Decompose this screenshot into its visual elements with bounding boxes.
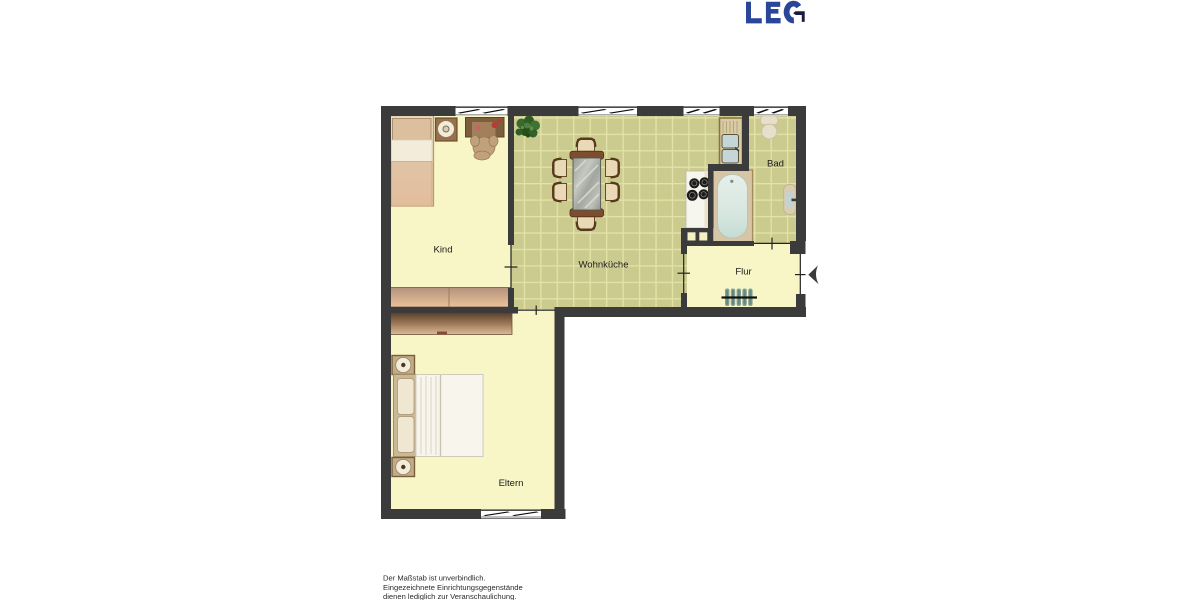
svg-text:dienen lediglich zur Veranscha: dienen lediglich zur Veranschaulichung. [383, 592, 516, 600]
svg-text:Wohnküche: Wohnküche [579, 260, 629, 271]
svg-text:Bad: Bad [767, 159, 784, 170]
svg-text:Eingezeichnete Einrichtungsgeg: Eingezeichnete Einrichtungsgegenstände [383, 583, 523, 592]
svg-text:Der Maßstab ist unverbindlich.: Der Maßstab ist unverbindlich. [383, 574, 486, 583]
svg-text:Flur: Flur [735, 267, 751, 278]
svg-text:Eltern: Eltern [499, 478, 524, 489]
svg-text:Kind: Kind [433, 245, 452, 256]
